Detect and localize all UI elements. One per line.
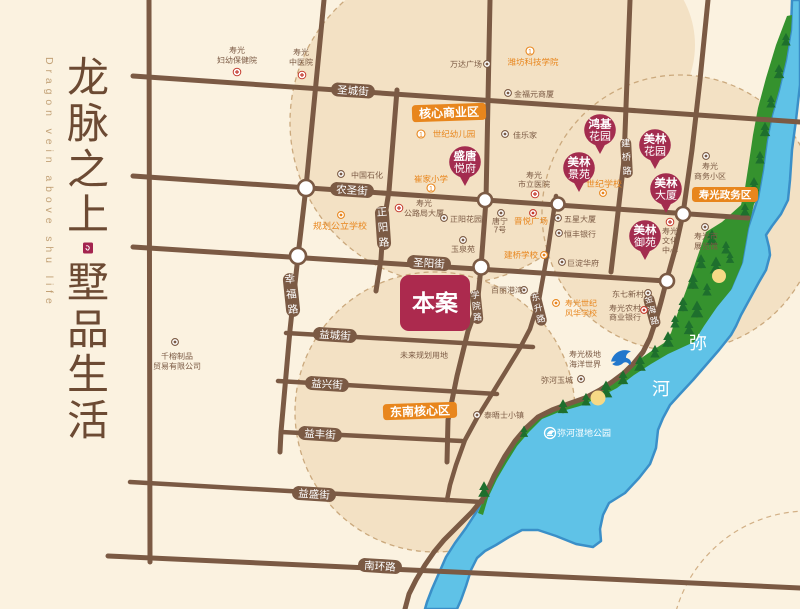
svg-text:百丽港湾: 百丽港湾	[491, 285, 523, 296]
svg-text:路: 路	[472, 310, 482, 324]
svg-text:桥: 桥	[621, 149, 631, 163]
svg-text:寿光政务区: 寿光政务区	[699, 187, 752, 202]
svg-text:建桥学校: 建桥学校	[504, 249, 539, 261]
svg-text:泰晤士小镇: 泰晤士小镇	[484, 410, 524, 421]
svg-text:东七新村: 东七新村	[612, 289, 644, 300]
svg-text:规划公立学校: 规划公立学校	[313, 219, 367, 232]
svg-text:建: 建	[621, 135, 631, 149]
svg-text:上: 上	[67, 181, 109, 242]
svg-text:巨淀华府: 巨淀华府	[567, 258, 599, 269]
svg-text:景苑: 景苑	[568, 166, 590, 182]
svg-text:金福元商厦: 金福元商厦	[514, 89, 554, 100]
svg-text:1: 1	[429, 184, 433, 194]
svg-text:玉泉苑: 玉泉苑	[451, 244, 475, 255]
svg-text:弥河湿地公园: 弥河湿地公园	[557, 426, 611, 439]
svg-text:花园: 花园	[644, 143, 666, 159]
svg-text:益丰街: 益丰街	[304, 426, 337, 443]
svg-text:花园: 花园	[589, 128, 611, 144]
svg-text:公路局大厦: 公路局大厦	[404, 208, 444, 219]
svg-text:世纪学校: 世纪学校	[586, 177, 622, 190]
svg-text:市立医院: 市立医院	[518, 179, 550, 190]
svg-text:潍坊科技学院: 潍坊科技学院	[507, 56, 559, 68]
svg-text:益城街: 益城街	[319, 327, 352, 344]
svg-text:展览馆: 展览馆	[694, 241, 718, 252]
svg-text:正: 正	[376, 204, 388, 220]
svg-text:圣城街: 圣城街	[337, 82, 370, 99]
svg-text:崔家小学: 崔家小学	[414, 173, 449, 185]
svg-text:活: 活	[67, 387, 109, 448]
svg-text:弥河玉城: 弥河玉城	[541, 375, 573, 386]
svg-text:弥: 弥	[689, 329, 707, 355]
svg-text:圣阳街: 圣阳街	[413, 255, 446, 272]
svg-text:福: 福	[285, 286, 297, 302]
svg-text:悦府: 悦府	[454, 160, 476, 176]
svg-text:未来规划用地: 未来规划用地	[400, 350, 448, 361]
svg-text:万达广场: 万达广场	[450, 59, 482, 70]
svg-text:商务小区: 商务小区	[694, 171, 726, 182]
svg-text:幸: 幸	[284, 271, 296, 287]
svg-text:路: 路	[287, 301, 300, 317]
svg-text:1: 1	[419, 130, 423, 140]
svg-text:风华学校: 风华学校	[565, 308, 597, 319]
svg-text:世纪幼儿园: 世纪幼儿园	[433, 128, 476, 140]
svg-text:妇幼保健院: 妇幼保健院	[217, 55, 257, 66]
svg-text:Dragon vein above shu life: Dragon vein above shu life	[42, 57, 57, 309]
svg-text:河: 河	[652, 375, 670, 401]
svg-text:东南核心区: 东南核心区	[390, 401, 451, 420]
svg-text:正阳花园: 正阳花园	[450, 214, 482, 225]
svg-text:中医院: 中医院	[289, 57, 313, 68]
svg-text:本案: 本案	[412, 284, 459, 318]
svg-text:益兴街: 益兴街	[311, 376, 344, 393]
svg-text:海洋世界: 海洋世界	[569, 359, 601, 370]
svg-text:御苑: 御苑	[634, 234, 656, 250]
svg-text:大厦: 大厦	[655, 187, 677, 203]
svg-text:核心商业区: 核心商业区	[419, 103, 480, 122]
svg-text:五星大厦: 五星大厦	[564, 214, 596, 225]
svg-text:农圣街: 农圣街	[336, 182, 369, 199]
svg-text:贸易有限公司: 贸易有限公司	[153, 361, 201, 372]
svg-text:路: 路	[622, 163, 632, 177]
svg-text:恒丰银行: 恒丰银行	[564, 229, 596, 240]
svg-text:晋悦广场: 晋悦广场	[514, 215, 548, 227]
svg-text:益盛街: 益盛街	[298, 486, 331, 503]
svg-text:商业银行: 商业银行	[609, 312, 641, 323]
svg-text:7号: 7号	[494, 225, 506, 236]
svg-text:阳: 阳	[377, 219, 389, 235]
svg-text:中心: 中心	[662, 245, 678, 256]
svg-text:中国石化: 中国石化	[351, 170, 383, 181]
svg-text:路: 路	[378, 235, 390, 251]
svg-text:佳乐家: 佳乐家	[513, 130, 537, 141]
svg-text:南环路: 南环路	[364, 558, 397, 575]
